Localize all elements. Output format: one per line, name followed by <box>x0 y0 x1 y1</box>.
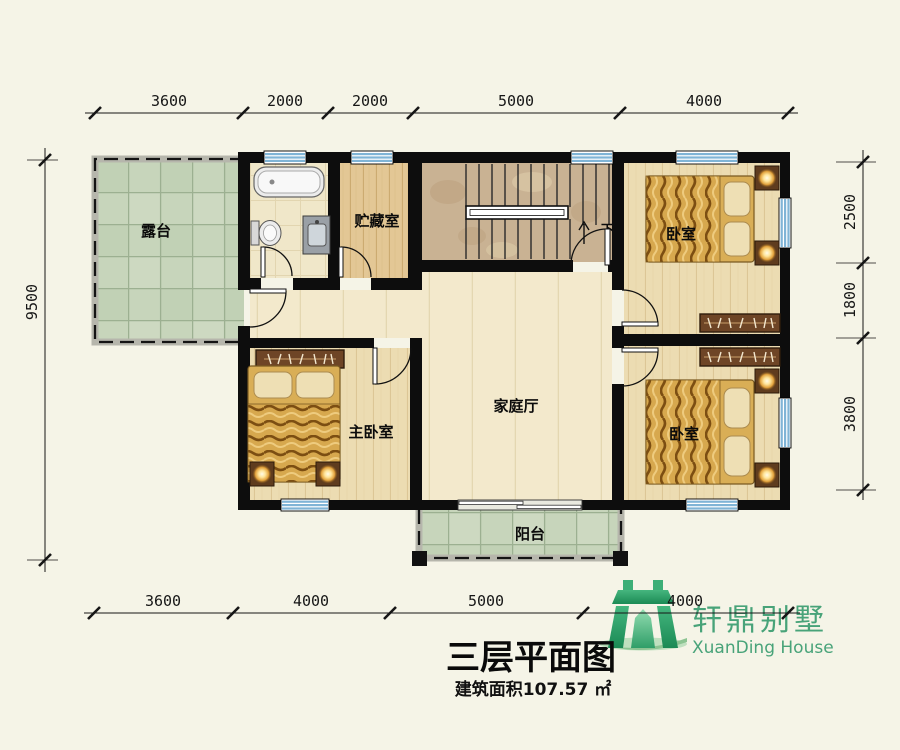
wall-master-top-a <box>238 338 374 348</box>
family-hall-label: 家庭厅 <box>493 397 538 415</box>
floor-plan-page: 下 <box>0 0 900 750</box>
wall-under-bath-b <box>293 278 339 290</box>
nightstand-lamp <box>755 463 779 487</box>
storage-label: 贮藏室 <box>353 212 399 230</box>
window <box>571 151 613 164</box>
wall-stair-bottom <box>422 260 573 272</box>
vanity-sink <box>303 216 330 254</box>
terrace-label: 露台 <box>141 222 171 240</box>
wall-between-bedrooms <box>624 334 780 346</box>
window <box>351 151 393 164</box>
nightstand-lamp <box>755 166 779 190</box>
dim-top-2: 2000 <box>267 92 303 110</box>
dim-top-4: 5000 <box>498 92 534 110</box>
dim-right-2: 1800 <box>841 282 859 318</box>
dim-right-1: 2500 <box>841 194 859 230</box>
terrace-floor <box>95 159 244 342</box>
window <box>264 151 306 164</box>
dim-top-1: 3600 <box>151 92 187 110</box>
bedroom-se-label: 卧室 <box>669 425 699 443</box>
master-bedroom-label: 主卧室 <box>348 423 393 441</box>
dim-top-3: 2000 <box>352 92 388 110</box>
logo-name-cn: 轩鼎别墅 <box>692 603 828 638</box>
dim-bottom-3: 5000 <box>468 592 504 610</box>
nightstand-lamp <box>250 462 274 486</box>
wall-under-bath-a <box>238 278 261 290</box>
wardrobe-bedroom-se <box>700 348 780 366</box>
family-hall-floor <box>422 272 612 500</box>
wardrobe-bedroom-ne <box>700 314 780 332</box>
toilet <box>251 221 281 246</box>
balcony-label: 阳台 <box>515 525 545 543</box>
window <box>779 398 791 448</box>
title-block: 三层平面图 建筑面积107.57 ㎡ <box>446 638 616 700</box>
dim-bottom-2: 4000 <box>293 592 329 610</box>
bedroom-ne-label: 卧室 <box>666 225 696 243</box>
window <box>686 499 738 511</box>
wall-hall-bedrooms-c <box>612 384 624 510</box>
wardrobe-master <box>256 350 344 368</box>
dim-right-3: 3800 <box>841 396 859 432</box>
wall-storage-stair <box>408 163 422 290</box>
drawing-title: 三层平面图 <box>446 638 616 678</box>
window <box>281 499 329 511</box>
dim-top-5: 4000 <box>686 92 722 110</box>
dim-bottom-1: 3600 <box>145 592 181 610</box>
bed-master <box>248 366 340 486</box>
stair-handrail <box>466 206 568 219</box>
dim-bottom-4: 4000 <box>667 592 703 610</box>
balcony-post <box>613 551 628 566</box>
balcony-sliding-door <box>458 500 582 510</box>
nightstand-lamp <box>755 241 779 265</box>
drawing-area: 建筑面积107.57 ㎡ <box>455 679 612 700</box>
nightstand-lamp <box>316 462 340 486</box>
logo-name-en: XuanDing House <box>692 638 834 658</box>
wall-left-upper <box>238 152 250 290</box>
floor-plan-canvas: 下 <box>0 0 900 750</box>
terrace <box>95 159 244 342</box>
wall-master-right <box>410 338 422 510</box>
wall-under-bath-c <box>371 278 422 290</box>
balcony-post <box>412 551 427 566</box>
wall-hall-bedrooms-a <box>612 152 624 290</box>
nightstand-lamp <box>755 369 779 393</box>
dim-left-1: 9500 <box>23 284 41 320</box>
window <box>676 151 738 164</box>
wall-hall-bedrooms-b <box>612 326 624 348</box>
bathtub <box>254 167 324 197</box>
window <box>779 198 791 248</box>
hallway-floor <box>250 290 422 338</box>
